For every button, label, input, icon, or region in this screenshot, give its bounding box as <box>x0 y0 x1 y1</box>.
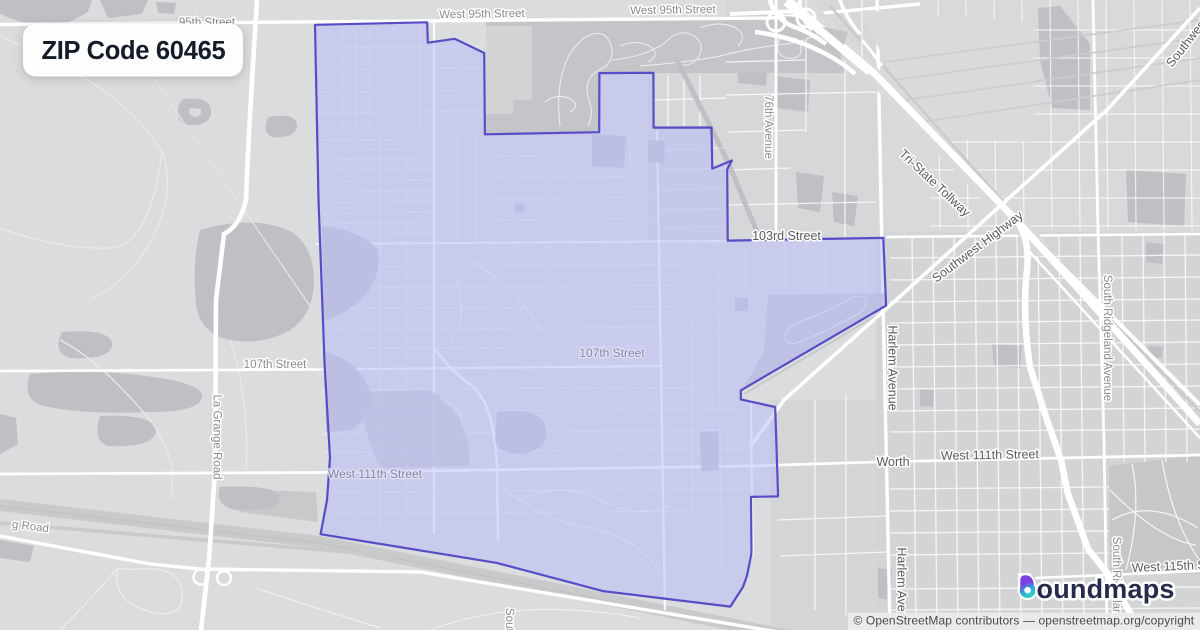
svg-text:West 95th Street: West 95th Street <box>439 8 525 21</box>
svg-text:oundmaps: oundmaps <box>1037 574 1175 604</box>
svg-text:103rd Street: 103rd Street <box>752 229 821 243</box>
svg-text:West 111th Street: West 111th Street <box>941 447 1040 463</box>
svg-text:107th Street: 107th Street <box>579 346 645 360</box>
svg-text:76th Avenue: 76th Avenue <box>762 95 774 159</box>
svg-text:West 111th Street: West 111th Street <box>328 467 423 481</box>
svg-text:West 95th Street: West 95th Street <box>630 4 716 17</box>
svg-text:Worth: Worth <box>876 455 909 469</box>
svg-text:South: South <box>503 608 515 630</box>
svg-text:South Ridgeland Avenue: South Ridgeland Avenue <box>1101 275 1113 401</box>
svg-text:© OpenStreetMap contributors —: © OpenStreetMap contributors — openstree… <box>854 614 1195 628</box>
svg-text:ZIP Code 60465: ZIP Code 60465 <box>42 37 226 65</box>
svg-text:La Grange Road: La Grange Road <box>211 394 223 479</box>
svg-text:Harlem Avenue: Harlem Avenue <box>886 325 900 410</box>
svg-text:107th Street: 107th Street <box>244 359 307 371</box>
